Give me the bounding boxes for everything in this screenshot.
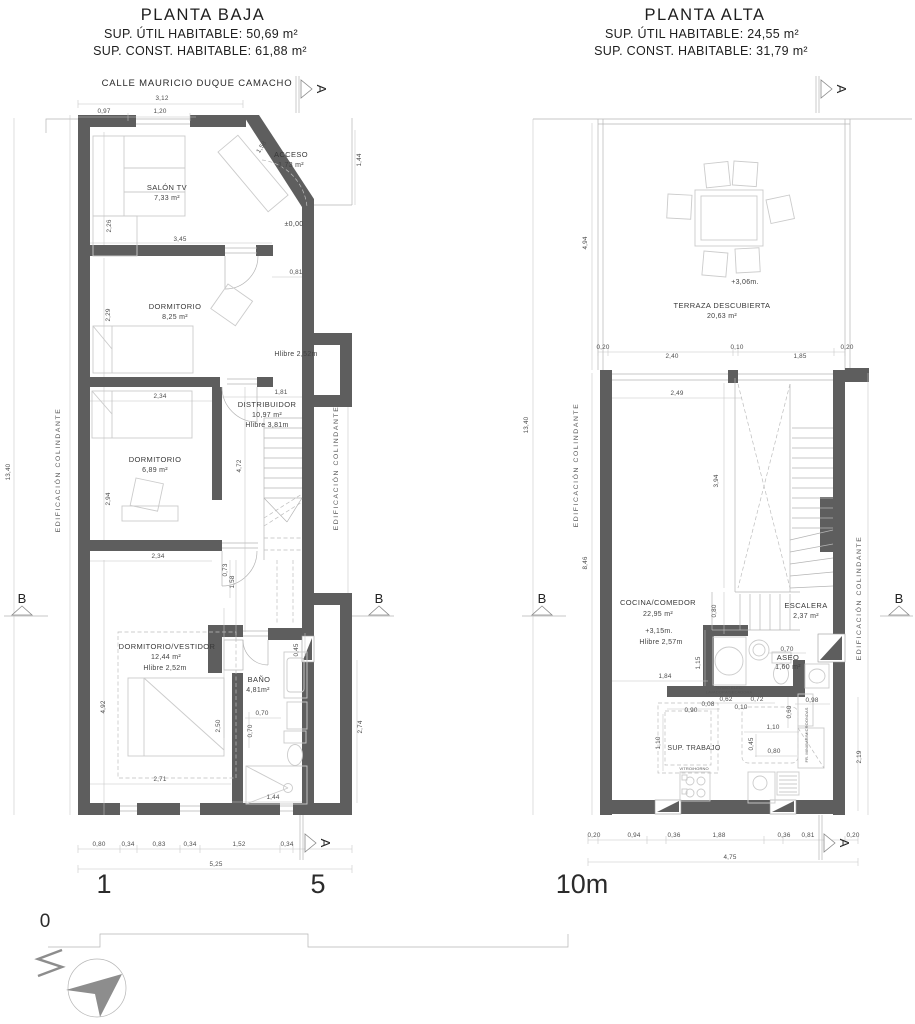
room-terraza: TERRAZA DESCUBIERTA [674,301,771,310]
svg-text:0,20: 0,20 [840,344,853,351]
room-cocina: COCINA/COMEDOR [620,598,696,607]
terrace-chair [735,248,760,273]
aseo-width: 0,70 [780,646,793,653]
washer [713,637,746,685]
svg-text:B: B [895,591,904,606]
svg-text:1,10: 1,10 [766,724,779,731]
svg-text:1,73 m²: 1,73 m² [278,162,304,169]
svg-text:1,52: 1,52 [232,841,245,848]
hob [680,772,710,801]
svg-text:3,45: 3,45 [173,236,186,243]
terraza-level: +3,06m. [731,279,759,286]
svg-text:1,58: 1,58 [229,575,236,588]
svg-text:0,34: 0,34 [121,841,134,848]
scale-bar: 0 1 5 10m [40,869,609,947]
dim: 0,97 [97,108,110,115]
svg-text:4,92: 4,92 [100,700,107,713]
svg-text:2,19: 2,19 [856,750,863,763]
toilet-bowl [288,745,303,766]
svg-text:0,45: 0,45 [748,737,755,750]
room-distribuidor: DISTRIBUIDOR [238,400,297,409]
svg-text:10,97 m²: 10,97 m² [252,412,282,419]
terrace-table [695,190,763,246]
baja-sup-const: SUP. CONST. HABITABLE: 61,88 m² [93,44,307,58]
aseo-basin [749,640,769,660]
svg-text:4,75: 4,75 [723,854,736,861]
plan-alta: PLANTA ALTA SUP. ÚTIL HABITABLE: 24,55 m… [523,6,912,866]
alta-stairs [712,378,833,630]
scale-five: 5 [310,869,325,899]
plan-baja: PLANTA BAJA SUP. ÚTIL HABITABLE: 50,69 m… [5,6,364,873]
baja-stairs [264,418,302,625]
svg-text:1,60 m²: 1,60 m² [775,664,801,671]
svg-text:4,94: 4,94 [582,236,589,249]
room-acceso: ACCESO [274,150,308,159]
svg-text:1,10: 1,10 [655,736,662,749]
bed-dorm1 [93,326,193,373]
dim: 1,20 [153,108,166,115]
room-salon: SALÓN TV [147,183,187,192]
north-letter-icon [38,950,62,976]
svg-text:2,37 m²: 2,37 m² [793,613,819,620]
svg-text:3,94: 3,94 [713,474,720,487]
svg-text:0,10: 0,10 [734,704,747,711]
svg-text:0,80: 0,80 [711,604,718,617]
floorplan-drawing: PLANTA BAJA SUP. ÚTIL HABITABLE: 50,69 m… [0,0,915,1024]
baja-street-label: CALLE MAURICIO DUQUE CAMACHO [102,78,293,89]
svg-text:0,45: 0,45 [293,643,300,656]
svg-text:0,94: 0,94 [627,832,640,839]
svg-text:6,89 m²: 6,89 m² [142,467,168,474]
room-bano: BAÑO [248,675,271,684]
room-dorm1: DORMITORIO [149,302,202,311]
svg-text:Hlibre 2,52m: Hlibre 2,52m [143,665,186,672]
svg-text:B: B [375,591,384,606]
terrace-chair [702,251,728,277]
baja-furniture [92,136,307,804]
sofa [93,136,185,216]
section-a-triangle-icon [301,80,312,98]
svg-text:13,40: 13,40 [5,463,12,480]
svg-text:1,84: 1,84 [658,673,671,680]
svg-text:2,49: 2,49 [670,390,683,397]
alta-dim-lines [533,119,858,866]
svg-text:2,71: 2,71 [153,776,166,783]
svg-text:A: A [834,85,849,94]
svg-text:1,15: 1,15 [695,656,702,669]
svg-text:0,73: 0,73 [222,563,229,576]
alta-walls [533,119,912,815]
svg-text:A: A [837,839,852,848]
alta-sup-util: SUP. ÚTIL HABITABLE: 24,55 m² [605,26,799,41]
svg-text:Hlibre 2,57m: Hlibre 2,57m [639,639,682,646]
svg-text:0,81: 0,81 [289,269,302,276]
svg-text:0,34: 0,34 [280,841,293,848]
terrace-chair [667,194,692,219]
svg-text:B: B [538,591,547,606]
svg-text:0,10: 0,10 [730,344,743,351]
alta-texts: 4,94 0,20 2,40 0,10 1,85 0,20 13,40 +3,0… [523,236,863,861]
svg-text:0,36: 0,36 [667,832,680,839]
section-a-triangle-icon [821,80,832,98]
svg-text:4,72: 4,72 [236,459,243,472]
section-b-label: B [18,591,27,606]
svg-text:0,70: 0,70 [255,710,268,717]
label-lavadora: LAVADORA/SECADORA [706,690,753,695]
colindante-left: EDIFICACIÓN COLINDANTE [53,408,62,533]
label-sup-trabajo: SUP. TRABAJO [667,745,720,752]
svg-text:2,26: 2,26 [106,219,113,232]
svg-text:2,74: 2,74 [357,720,364,733]
svg-text:0,20: 0,20 [587,832,600,839]
colindante-right: EDIFICACIÓN COLINDANTE [854,536,863,661]
baja-walls [78,115,352,815]
scale-one: 1 [96,869,111,899]
svg-text:1,88: 1,88 [712,832,725,839]
bed-vestidor [128,678,224,756]
svg-text:1,44: 1,44 [266,794,279,801]
section-markers: A A A A B B B B [4,76,913,860]
terrace-chair [766,195,794,223]
svg-text:0,34: 0,34 [183,841,196,848]
svg-text:2,29: 2,29 [105,308,112,321]
desk [122,506,178,521]
svg-text:0,80: 0,80 [767,748,780,755]
svg-text:0,62: 0,62 [719,696,732,703]
svg-text:Hlibre 2,52m: Hlibre 2,52m [274,351,317,358]
room-dorm2: DORMITORIO [129,455,182,464]
svg-text:0,60: 0,60 [786,705,793,718]
north-arrow-icon [66,974,122,1017]
room-aseo: ASEO [777,653,799,662]
section-a-triangle-icon [305,834,316,852]
alta-title: PLANTA ALTA [644,6,765,24]
svg-text:20,63 m²: 20,63 m² [707,313,737,320]
svg-text:2,94: 2,94 [105,492,112,505]
alta-sup-const: SUP. CONST. HABITABLE: 31,79 m² [594,44,808,58]
terrace-chair [732,161,758,187]
svg-text:2,50: 2,50 [215,719,222,732]
level-entry: ±0,00 [285,221,304,228]
scale-ten: 10m [556,869,609,899]
svg-text:4,81m²: 4,81m² [246,687,270,694]
svg-text:13,40: 13,40 [523,416,530,433]
chair-dorm1 [211,284,253,326]
floorplan-sheet: PLANTA BAJA SUP. ÚTIL HABITABLE: 50,69 m… [0,0,915,1024]
svg-text:A: A [318,839,333,848]
label-minibar: FR. MINIBAR/MICROONDAS [804,707,809,762]
svg-text:2,34: 2,34 [153,393,166,400]
cocina-level: +3,15m. [645,628,673,635]
svg-text:1,81: 1,81 [274,389,287,396]
svg-text:0,20: 0,20 [596,344,609,351]
svg-text:0,90: 0,90 [684,707,697,714]
section-a-label: A [314,85,329,94]
svg-text:1,85: 1,85 [793,353,806,360]
svg-text:2,40: 2,40 [665,353,678,360]
svg-text:2,34: 2,34 [151,553,164,560]
colindante-right: EDIFICACIÓN COLINDANTE [331,406,340,531]
svg-text:22,95 m²: 22,95 m² [643,611,673,618]
dim: 3,12 [155,95,168,102]
svg-text:7,33 m²: 7,33 m² [154,195,180,202]
svg-text:1,44: 1,44 [356,153,363,166]
svg-text:0,80: 0,80 [92,841,105,848]
baja-title: PLANTA BAJA [141,6,265,24]
svg-text:0,83: 0,83 [152,841,165,848]
svg-text:0,08: 0,08 [701,701,714,708]
svg-text:Hlibre 3,81m: Hlibre 3,81m [245,422,288,429]
north-arrow [38,950,126,1017]
svg-text:0,72: 0,72 [750,696,763,703]
baja-sup-util: SUP. ÚTIL HABITABLE: 50,69 m² [104,26,298,41]
scale-zero: 0 [40,911,51,932]
room-escalera: ESCALERA [784,601,827,610]
svg-text:5,25: 5,25 [209,861,222,868]
room-vestidor: DORMITORIO/VESTIDOR [119,642,216,651]
terrace-chair [704,161,730,187]
bed-dorm2 [92,391,192,438]
colindante-left: EDIFICACIÓN COLINDANTE [571,403,580,528]
svg-text:8,25 m²: 8,25 m² [162,314,188,321]
section-a-triangle-icon [824,834,835,852]
sink [748,772,775,803]
label-vitro: VITRO/HORNO [679,766,708,771]
svg-text:8,46: 8,46 [582,556,589,569]
svg-text:0,81: 0,81 [801,832,814,839]
svg-text:12,44 m²: 12,44 m² [151,654,181,661]
svg-text:0,70: 0,70 [247,724,254,737]
svg-text:0,98: 0,98 [805,697,818,704]
svg-text:0,36: 0,36 [777,832,790,839]
